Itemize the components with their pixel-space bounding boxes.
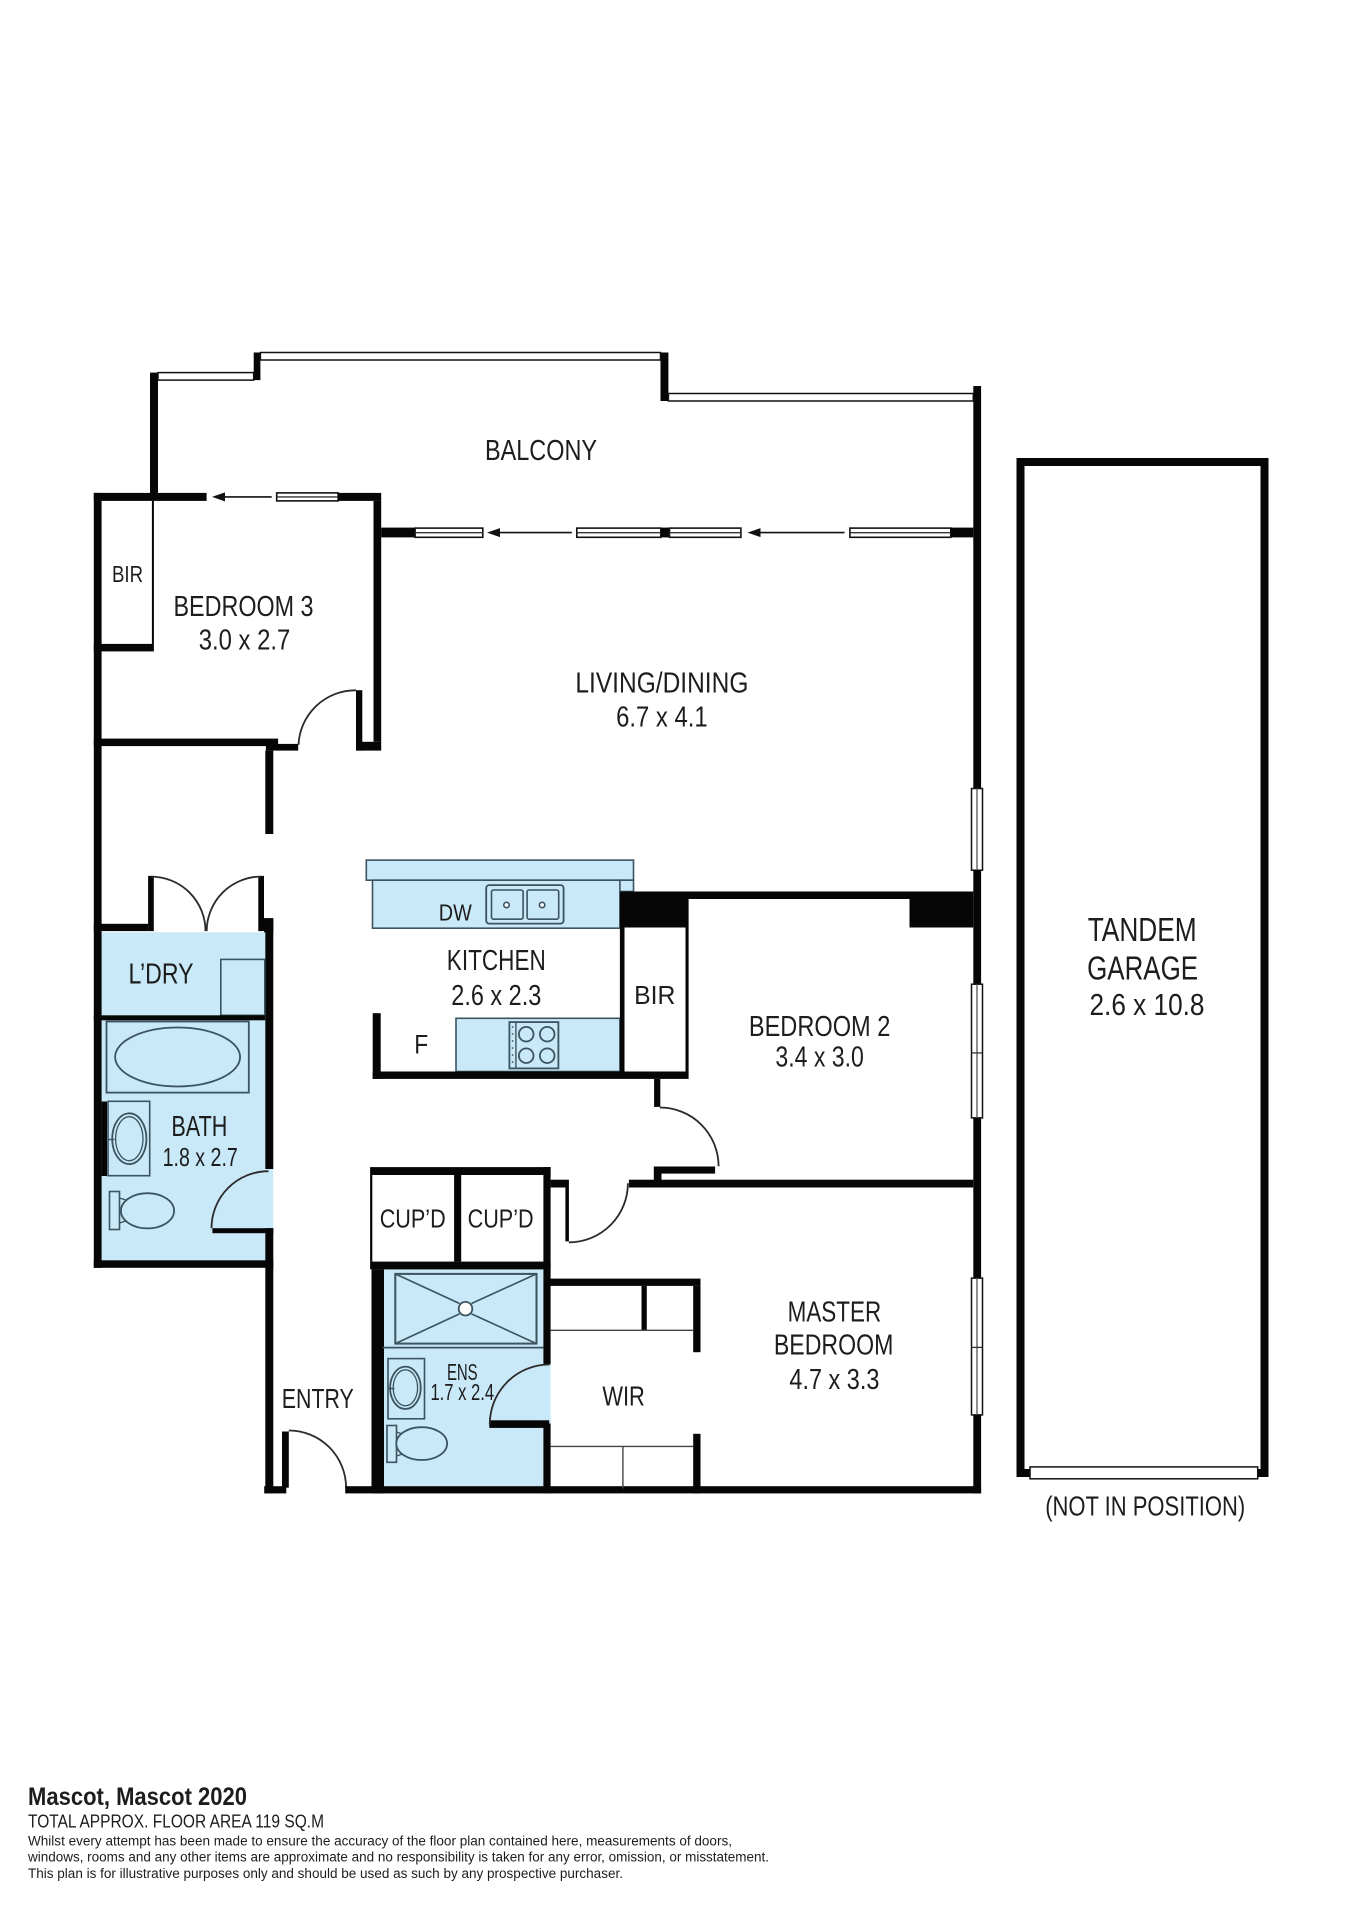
svg-text:2.6 x 10.8: 2.6 x 10.8 [1090,987,1205,1022]
svg-text:MASTER: MASTER [788,1296,882,1328]
svg-text:F: F [414,1030,428,1060]
svg-text:BIR: BIR [112,561,143,587]
svg-text:6.7 x 4.1: 6.7 x 4.1 [616,702,708,734]
svg-text:BEDROOM 2: BEDROOM 2 [749,1011,891,1043]
svg-text:DW: DW [439,900,472,926]
svg-text:CUP’D: CUP’D [468,1204,534,1234]
svg-text:1.7 x 2.4: 1.7 x 2.4 [430,1379,494,1405]
svg-text:BALCONY: BALCONY [485,435,597,467]
svg-text:LIVING/DINING: LIVING/DINING [575,668,748,700]
svg-text:ENTRY: ENTRY [282,1383,354,1414]
svg-text:4.7 x 3.3: 4.7 x 3.3 [789,1364,879,1396]
svg-text:BIR: BIR [634,980,675,1010]
svg-text:windows, rooms and any other i: windows, rooms and any other items are a… [27,1850,769,1865]
svg-text:GARAGE: GARAGE [1087,949,1198,986]
svg-text:Mascot, Mascot 2020: Mascot, Mascot 2020 [28,1783,247,1811]
svg-text:KITCHEN: KITCHEN [447,945,546,977]
svg-text:This plan is for illustrative: This plan is for illustrative purposes o… [28,1866,623,1881]
svg-text:1.8 x 2.7: 1.8 x 2.7 [163,1142,238,1172]
svg-text:WIR: WIR [602,1380,645,1411]
svg-text:BATH: BATH [171,1111,227,1143]
svg-text:(NOT IN POSITION): (NOT IN POSITION) [1045,1491,1245,1522]
svg-text:2.6 x 2.3: 2.6 x 2.3 [451,980,541,1012]
svg-text:BEDROOM 3: BEDROOM 3 [174,591,314,623]
svg-text:TOTAL APPROX. FLOOR AREA 119 S: TOTAL APPROX. FLOOR AREA 119 SQ.M [28,1810,324,1831]
svg-text:TANDEM: TANDEM [1088,911,1197,948]
svg-text:CUP’D: CUP’D [380,1204,446,1234]
svg-text:3.0 x 2.7: 3.0 x 2.7 [199,625,291,657]
svg-text:3.4 x 3.0: 3.4 x 3.0 [775,1042,863,1074]
svg-text:Whilst every attempt has been: Whilst every attempt has been made to en… [28,1833,732,1848]
svg-text:L’DRY: L’DRY [129,959,194,991]
svg-text:BEDROOM: BEDROOM [774,1329,894,1361]
